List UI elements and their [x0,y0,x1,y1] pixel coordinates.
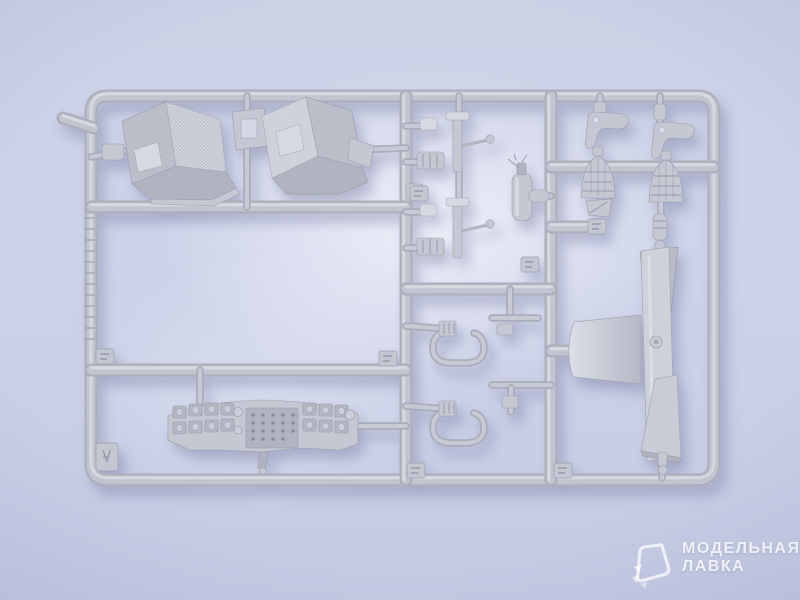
photo-stage: cockpit bucket seat (left) cockpit bucke… [0,0,800,600]
modelnaya-lavka-logo-icon [630,540,676,588]
watermark-brand-line1: МОДЕЛЬНАЯ [682,540,800,558]
watermark-brand-line2: ЛАВКА [682,558,800,576]
watermark: МОДЕЛЬНАЯ ЛАВКА [630,540,800,588]
watermark-text: МОДЕЛЬНАЯ ЛАВКА [682,540,800,576]
photo-vignette [0,0,800,600]
